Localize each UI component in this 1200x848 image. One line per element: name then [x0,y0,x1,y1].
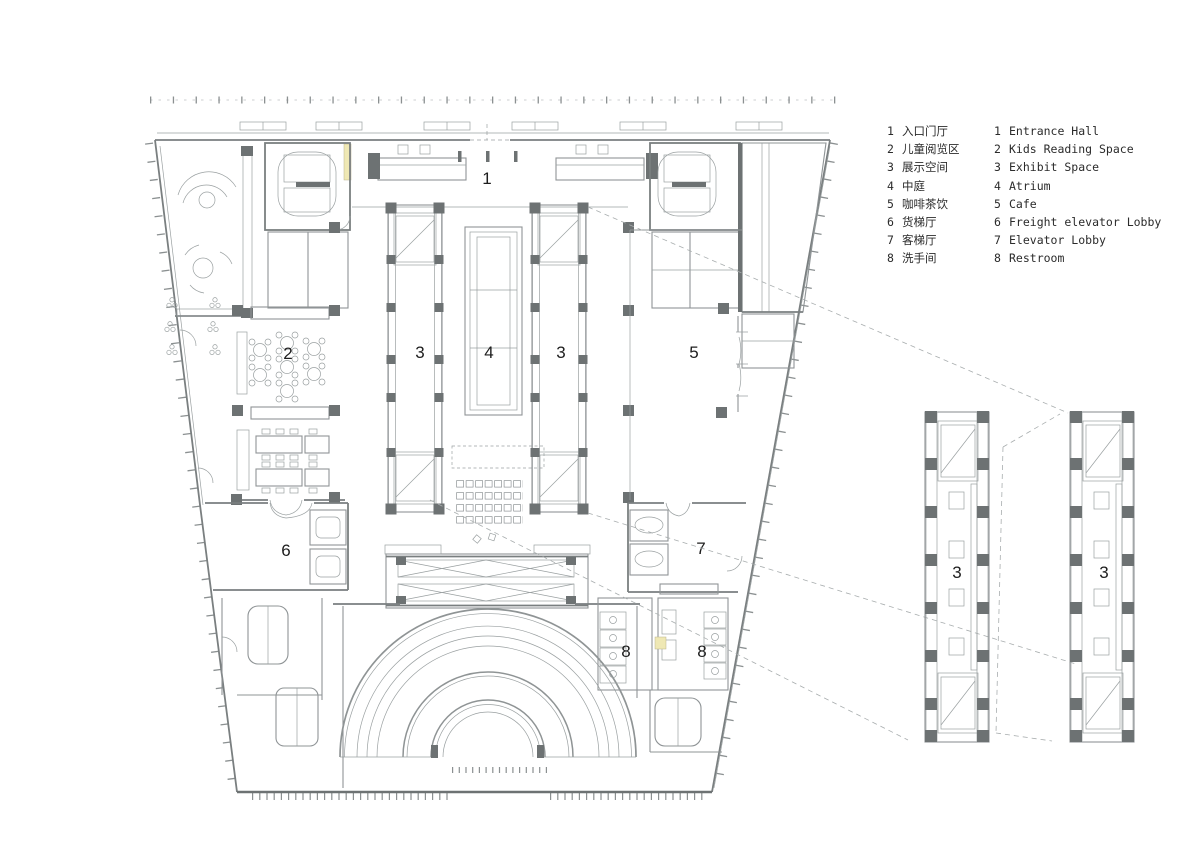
legend-num: 5 [887,195,902,213]
escalator-northeast [738,143,826,368]
legend-row-freight: 6 货梯厅 6 Freight elevator Lobby [887,213,1187,231]
structural-columns [231,222,729,505]
legend-zh: 货梯厅 [902,213,994,231]
room-label-cafe: 5 [689,343,698,362]
room-label-kids: 2 [283,344,292,363]
legend-en: Entrance Hall [1009,122,1187,140]
detail-label-exhibit-left: 3 [952,563,961,582]
legend-zh: 展示空间 [902,158,994,176]
room-label-exhibit-right: 3 [556,343,565,362]
room-label-exhibit-left: 3 [415,343,424,362]
exhibit-detail-view: 3 3 [925,411,1134,742]
amphitheater [333,604,640,788]
entrance-hall [344,144,658,207]
legend-zh: 入口门厅 [902,122,994,140]
legend-num: 7 [887,231,902,249]
elevator-lobby [628,503,746,592]
cafe-area [630,230,748,500]
legend-row-elevator: 7 客梯厅 7 Elevator Lobby [887,231,1187,249]
room-label-freight: 6 [281,541,290,560]
legend-row-entrance: 1 入口门厅 1 Entrance Hall [887,122,1187,140]
legend-en: Elevator Lobby [1009,231,1187,249]
atrium-void [465,227,522,415]
legend-en: Restroom [1009,249,1187,267]
legend-en: Cafe [1009,195,1187,213]
legend-zh: 儿童阅览区 [902,140,994,158]
room-label-restroom-a: 8 [621,642,630,661]
legend-zh: 咖啡茶饮 [902,195,994,213]
legend-row-restroom: 8 洗手间 8 Restroom [887,249,1187,267]
freight-elevator-lobby [205,503,348,590]
legend-num-en: 3 [994,158,1009,176]
legend-row-kids: 2 儿童阅览区 2 Kids Reading Space [887,140,1187,158]
legend: 1 入口门厅 1 Entrance Hall 2 儿童阅览区 2 Kids Re… [887,122,1187,268]
restrooms [598,584,728,690]
stair-core-northeast [650,143,740,308]
legend-en: Kids Reading Space [1009,140,1187,158]
legend-en: Atrium [1009,177,1187,195]
detail-label-exhibit-right: 3 [1099,563,1108,582]
stair-core-southwest [222,598,322,746]
room-label-elevator: 7 [696,539,705,558]
room-label-entrance: 1 [482,169,491,188]
legend-num-en: 6 [994,213,1009,231]
room-label-restroom-b: 8 [697,642,706,661]
event-seating [452,446,544,543]
legend-num-en: 1 [994,122,1009,140]
legend-en: Exhibit Space [1009,158,1187,176]
legend-num: 1 [887,122,902,140]
legend-zh: 客梯厅 [902,231,994,249]
legend-num-en: 8 [994,249,1009,267]
legend-num: 3 [887,158,902,176]
legend-zh: 洗手间 [902,249,994,267]
legend-num: 2 [887,140,902,158]
legend-row-exhibit: 3 展示空间 3 Exhibit Space [887,158,1187,176]
escalator-bank [385,545,590,608]
legend-zh: 中庭 [902,177,994,195]
building-outline [155,122,830,792]
legend-num: 8 [887,249,902,267]
room-label-atrium: 4 [484,343,493,362]
legend-row-cafe: 5 咖啡茶饮 5 Cafe [887,195,1187,213]
legend-row-atrium: 4 中庭 4 Atrium [887,177,1187,195]
legend-num: 6 [887,213,902,231]
legend-num: 4 [887,177,902,195]
legend-num-en: 2 [994,140,1009,158]
legend-num-en: 5 [994,195,1009,213]
legend-num-en: 7 [994,231,1009,249]
legend-en: Freight elevator Lobby [1009,213,1187,231]
stair-core-southeast [650,690,722,752]
floor-plan-sheet: 1 2 3 4 3 5 6 7 8 8 3 3 1 入口门厅 1 Entranc… [0,0,1200,848]
legend-num-en: 4 [994,177,1009,195]
